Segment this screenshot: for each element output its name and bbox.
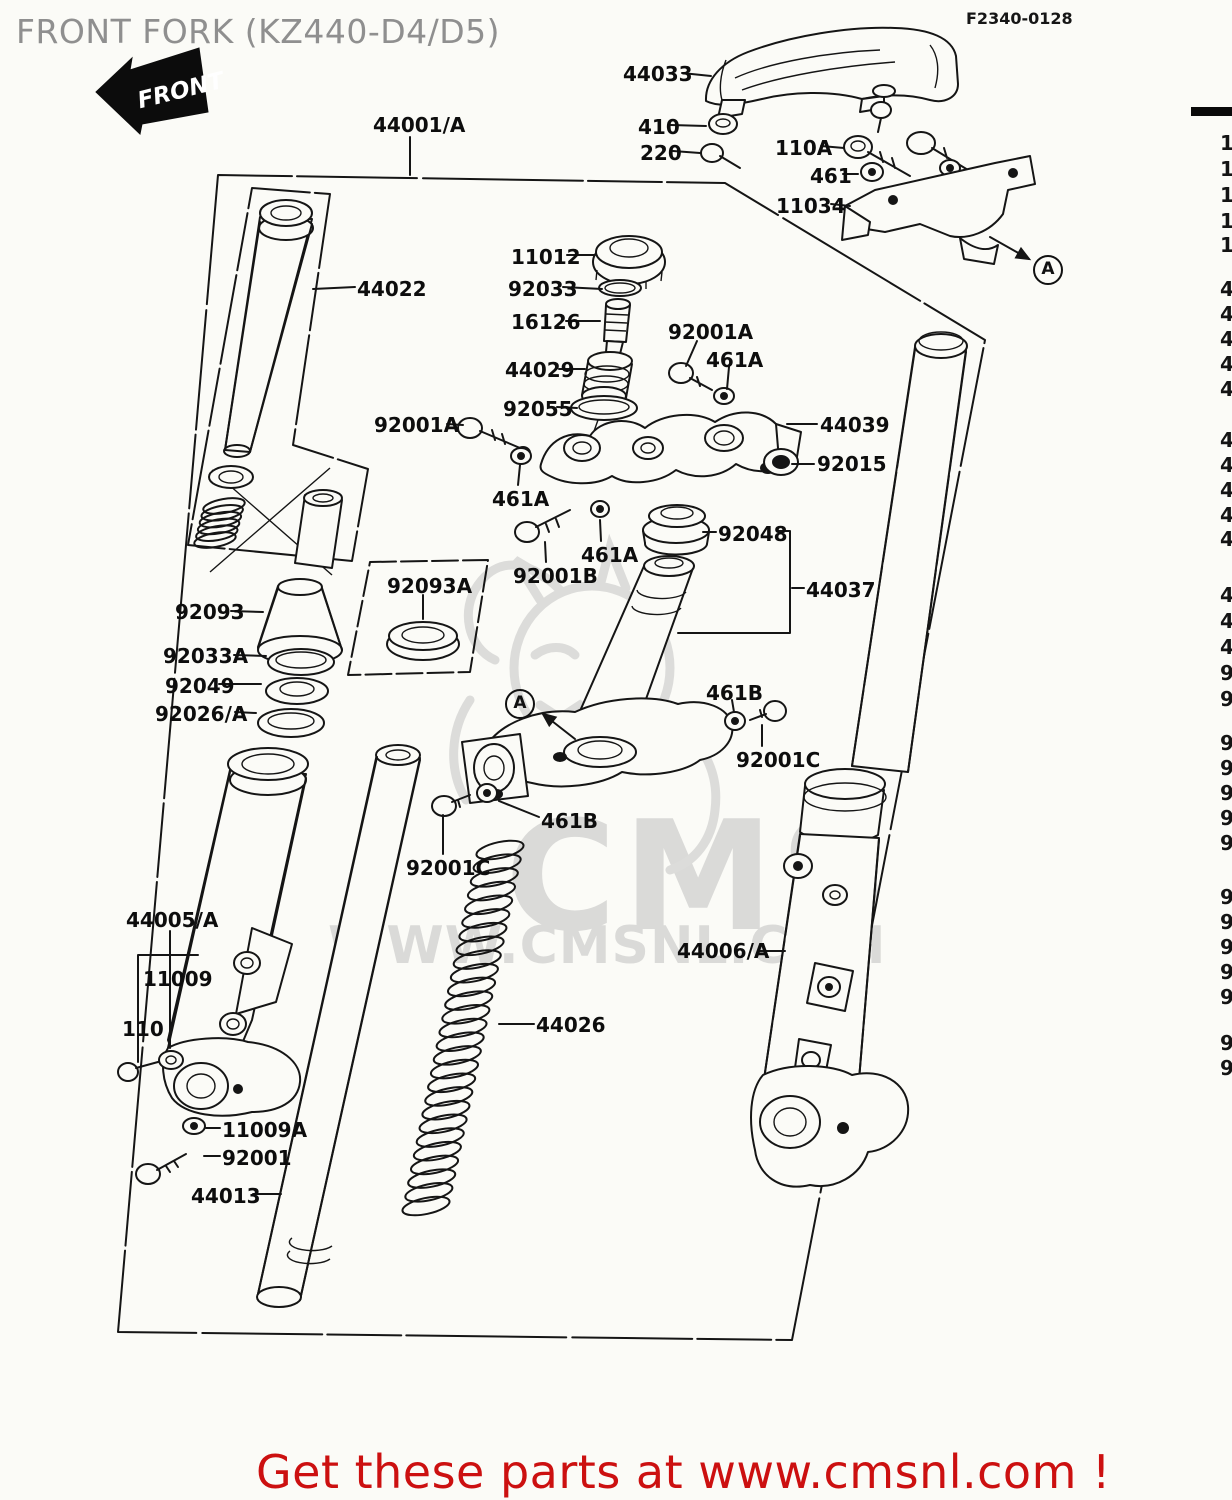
table-part-number-cropped: 1 xyxy=(1220,131,1232,155)
part-label-461B: 461B xyxy=(541,809,598,833)
part-label-44013: 44013 xyxy=(191,1184,261,1208)
front-direction-badge: FRONT xyxy=(84,36,244,146)
oring-92033 xyxy=(599,280,641,296)
table-part-number-cropped: 4 xyxy=(1220,302,1232,326)
part-label-461A: 461A xyxy=(706,348,763,372)
handle-grip-44033 xyxy=(706,28,958,118)
table-part-number-cropped: 4 xyxy=(1220,527,1232,551)
table-part-number-cropped: 9 xyxy=(1220,1031,1232,1055)
part-label-11034: 11034 xyxy=(776,194,846,218)
table-part-number-cropped: 9 xyxy=(1220,781,1232,805)
part-label-461: 461 xyxy=(810,164,852,188)
footer-promo: Get these parts at www.cmsnl.com ! xyxy=(256,1445,1111,1499)
part-label-92001B: 92001B xyxy=(513,564,598,588)
part-label-220: 220 xyxy=(640,141,682,165)
part-label-16126: 16126 xyxy=(511,310,581,334)
table-part-number-cropped: 4 xyxy=(1220,609,1232,633)
view-ref-A: A xyxy=(505,689,535,719)
table-part-number-cropped: 1 xyxy=(1220,233,1232,257)
part-label-44022: 44022 xyxy=(357,277,427,301)
part-label-11009A: 11009A xyxy=(222,1118,307,1142)
steering-stem-44037 xyxy=(462,556,732,803)
part-label-461B: 461B xyxy=(706,681,763,705)
table-part-number-cropped: 4 xyxy=(1220,583,1232,607)
table-part-number-cropped: 4 xyxy=(1220,428,1232,452)
table-part-number-cropped: 4 xyxy=(1220,635,1232,659)
part-label-92001C: 92001C xyxy=(406,856,490,880)
stem-locknut-92015 xyxy=(764,449,798,475)
upper-triple-clamp-44039 xyxy=(540,412,801,483)
exploded-diagram xyxy=(0,0,1232,1500)
bracket-44037 xyxy=(678,531,790,633)
part-label-44006A: 44006/A xyxy=(677,939,769,963)
part-label-110: 110 xyxy=(122,1017,164,1041)
table-part-number-cropped: 4 xyxy=(1220,377,1232,401)
table-part-number-cropped: 4 xyxy=(1220,453,1232,477)
part-label-92055: 92055 xyxy=(503,397,573,421)
part-label-44026: 44026 xyxy=(536,1013,606,1037)
table-part-number-cropped: 9 xyxy=(1220,687,1232,711)
table-part-number-cropped: 4 xyxy=(1220,327,1232,351)
part-label-92026A: 92026/A xyxy=(155,702,247,726)
part-label-92049: 92049 xyxy=(165,674,235,698)
part-label-44029: 44029 xyxy=(505,358,575,382)
bearing-cover-92048 xyxy=(643,505,709,555)
table-part-number-cropped: 9 xyxy=(1220,935,1232,959)
part-label-44005A: 44005/A xyxy=(126,908,218,932)
fork-spring-44026 xyxy=(401,837,525,1219)
part-label-461A: 461A xyxy=(492,487,549,511)
part-label-44001A: 44001/A xyxy=(373,113,465,137)
parts-fiche-page: FRONT FORK (KZ440-D4/D5) F2340-0128 CMS … xyxy=(0,0,1232,1500)
table-part-number-cropped: 9 xyxy=(1220,756,1232,780)
table-part-number-cropped: 4 xyxy=(1220,503,1232,527)
table-part-number-cropped: 4 xyxy=(1220,352,1232,376)
part-label-92001A: 92001A xyxy=(374,413,459,437)
table-part-number-cropped: 9 xyxy=(1220,885,1232,909)
table-part-number-cropped: 4 xyxy=(1220,277,1232,301)
table-part-number-cropped: 1 xyxy=(1220,209,1232,233)
table-part-number-cropped: 1 xyxy=(1220,183,1232,207)
table-part-number-cropped: 9 xyxy=(1220,831,1232,855)
inner-tube-44022 xyxy=(224,200,313,457)
part-label-11012: 11012 xyxy=(511,245,581,269)
part-label-11009: 11009 xyxy=(143,967,213,991)
table-part-number-cropped: 9 xyxy=(1220,910,1232,934)
seal-92093a xyxy=(387,622,459,660)
part-label-92093: 92093 xyxy=(175,600,245,624)
part-label-44037: 44037 xyxy=(806,578,876,602)
part-label-92093A: 92093A xyxy=(387,574,472,598)
table-part-number-cropped: 1 xyxy=(1220,157,1232,181)
table-part-number-cropped: 9 xyxy=(1220,960,1232,984)
part-label-92001C: 92001C xyxy=(736,748,820,772)
view-ref-A: A xyxy=(1033,255,1063,285)
part-label-44033: 44033 xyxy=(623,62,693,86)
part-label-44039: 44039 xyxy=(820,413,890,437)
table-part-number-cropped: 4 xyxy=(1220,478,1232,502)
table-part-number-cropped: 9 xyxy=(1220,1056,1232,1080)
part-label-92015: 92015 xyxy=(817,452,887,476)
part-label-92048: 92048 xyxy=(718,522,788,546)
part-label-92033: 92033 xyxy=(508,277,578,301)
dust-boot-and-seals xyxy=(258,579,342,737)
part-label-92033A: 92033A xyxy=(163,644,248,668)
part-label-92001A: 92001A xyxy=(668,320,753,344)
parts-table-cropped: 11111444444444444499999999999999 xyxy=(1220,0,1232,1200)
air-valve-16126 xyxy=(604,299,630,354)
part-label-92001: 92001 xyxy=(222,1146,292,1170)
part-label-110A: 110A xyxy=(775,136,832,160)
part-label-461A: 461A xyxy=(581,543,638,567)
part-label-410: 410 xyxy=(638,115,680,139)
table-part-number-cropped: 9 xyxy=(1220,731,1232,755)
table-part-number-cropped: 9 xyxy=(1220,806,1232,830)
table-part-number-cropped: 9 xyxy=(1220,661,1232,685)
table-part-number-cropped: 9 xyxy=(1220,985,1232,1009)
